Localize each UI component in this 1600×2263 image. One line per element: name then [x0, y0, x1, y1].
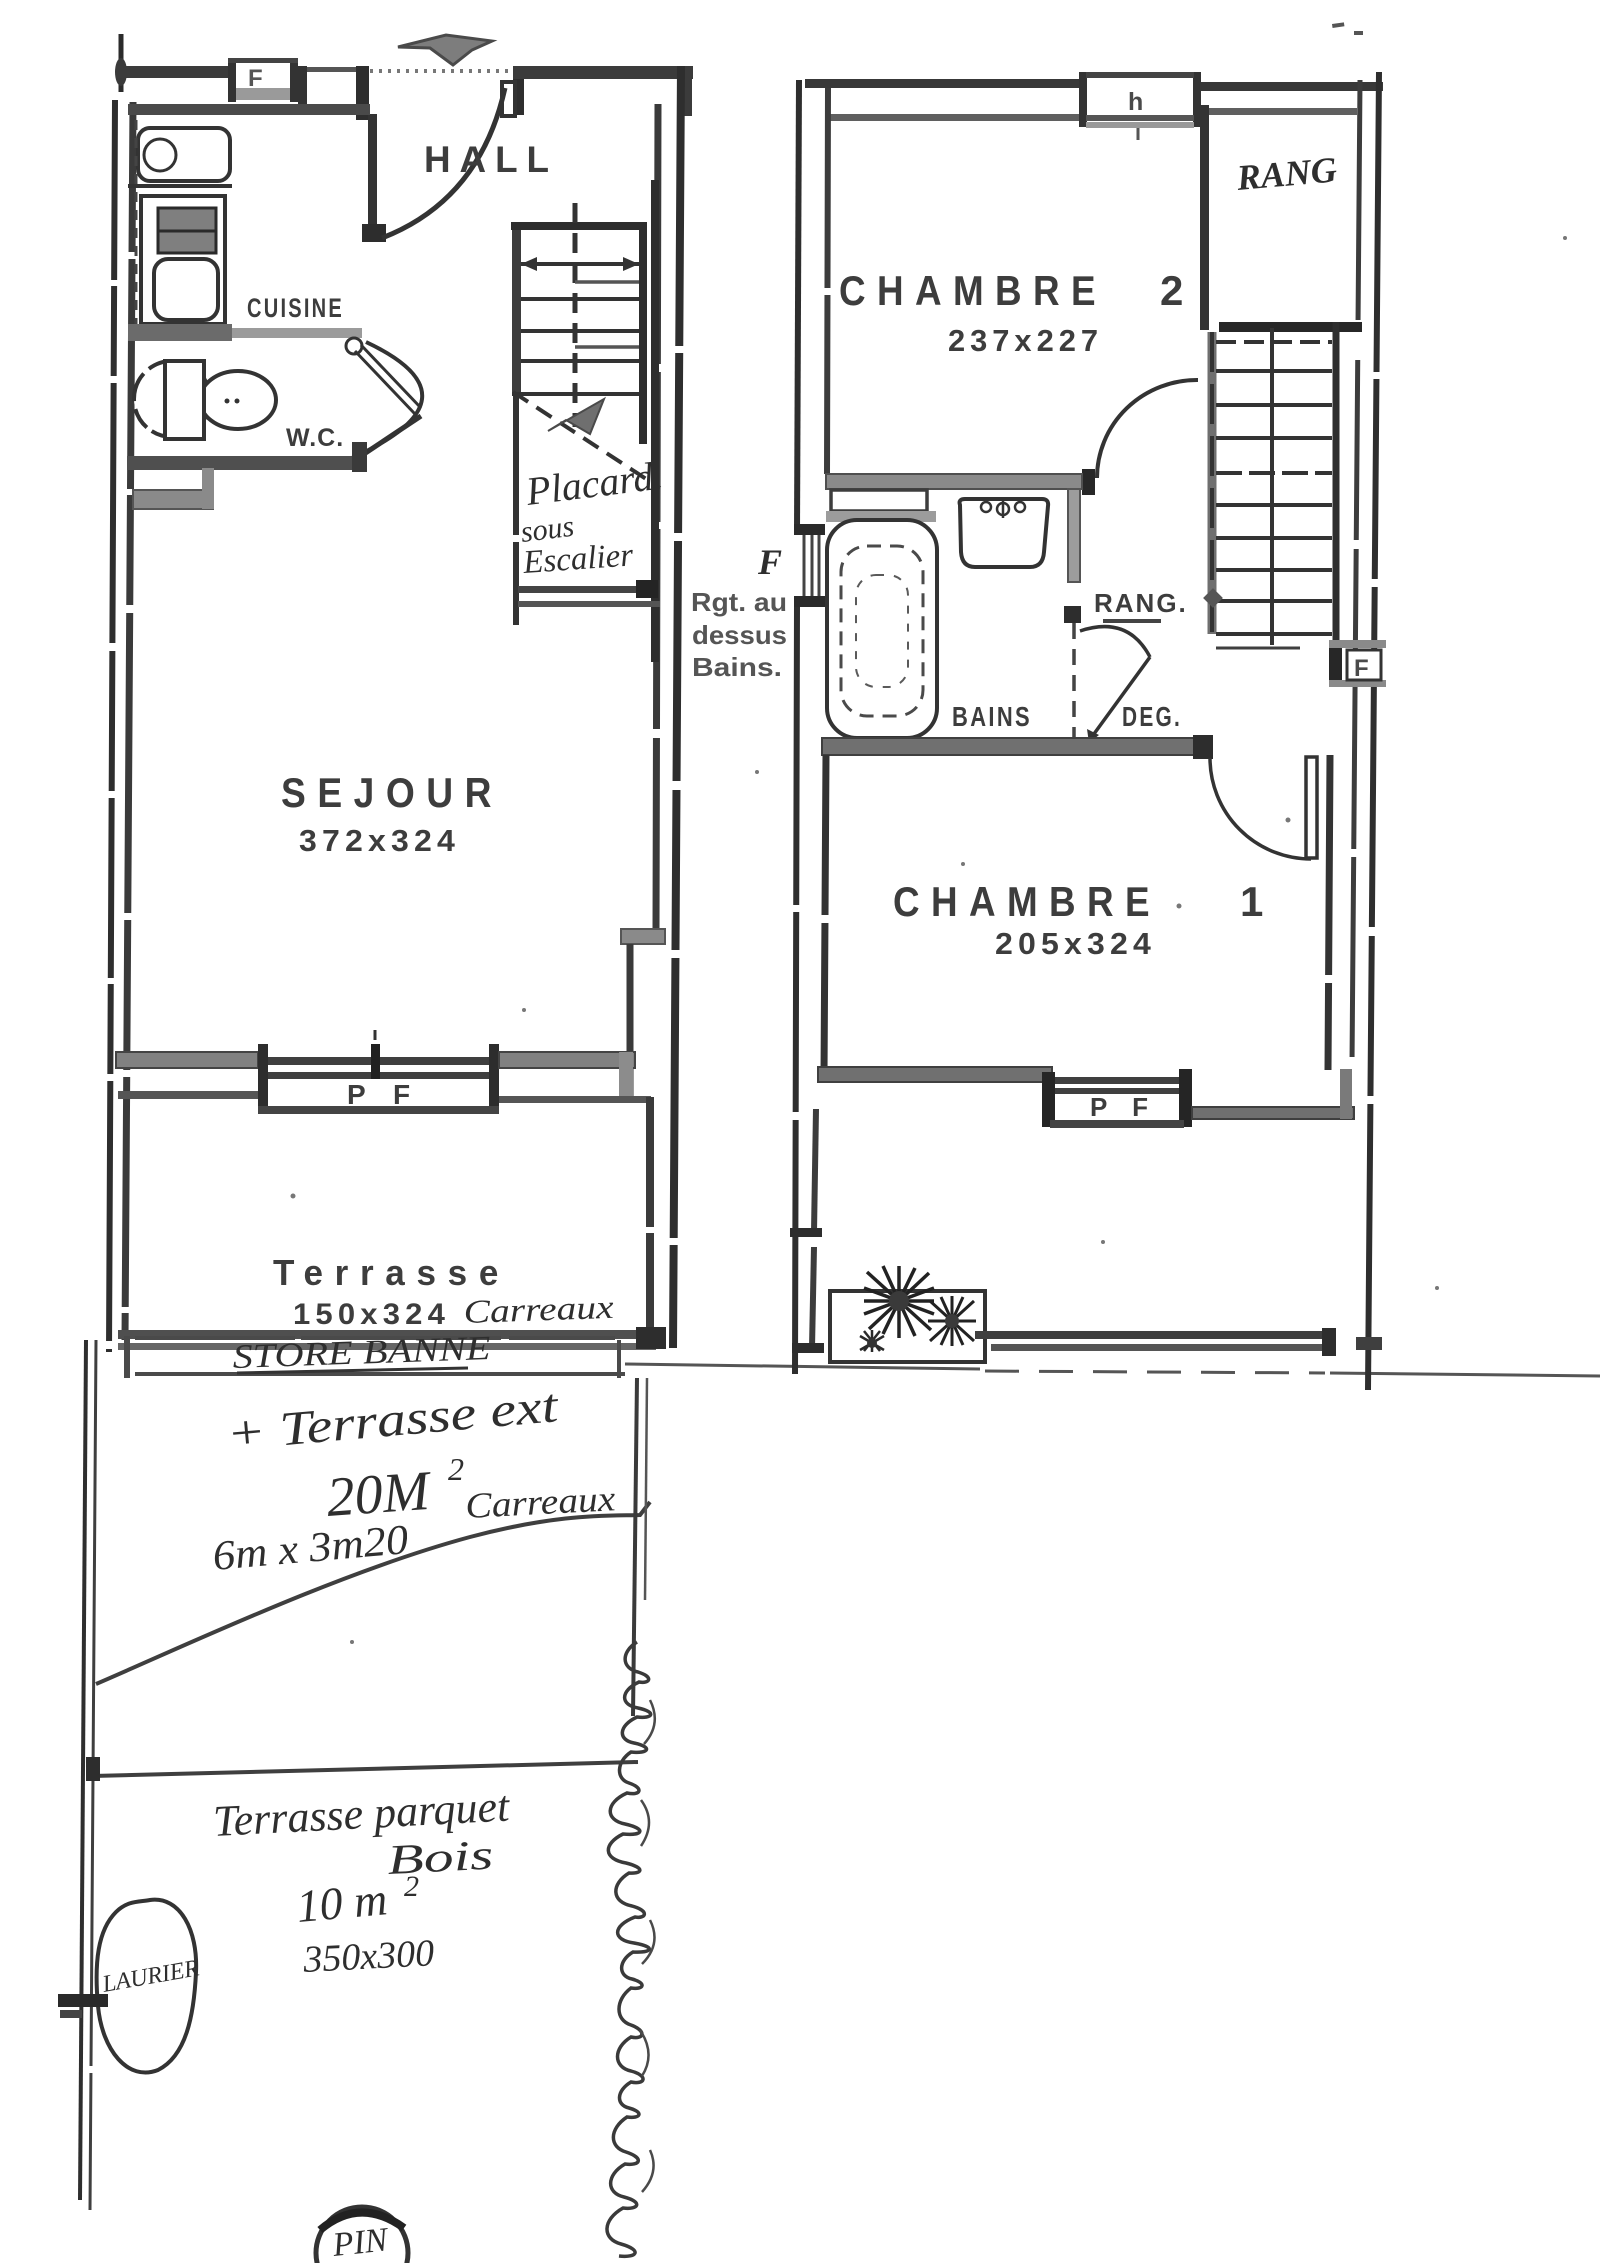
svg-text:Bois: Bois	[386, 1833, 494, 1884]
svg-text:Escalier: Escalier	[521, 537, 634, 581]
svg-text:Placard: Placard	[523, 454, 657, 514]
svg-text:DEG.: DEG.	[1122, 701, 1182, 732]
svg-text:Rgt. au: Rgt. au	[691, 587, 787, 617]
svg-text:6m x 3m20: 6m x 3m20	[211, 1517, 410, 1580]
svg-text:Carreaux: Carreaux	[463, 1290, 615, 1331]
svg-text:W.C.: W.C.	[286, 424, 344, 452]
svg-text:F: F	[757, 542, 782, 582]
svg-text:CUISINE: CUISINE	[247, 293, 344, 323]
svg-text:P F: P F	[347, 1079, 420, 1110]
svg-text:Terrasse: Terrasse	[273, 1252, 510, 1293]
svg-text:2: 2	[404, 1870, 419, 1903]
svg-text:F: F	[1354, 655, 1369, 682]
svg-text:350x300: 350x300	[301, 1932, 435, 1981]
svg-text:1: 1	[1240, 878, 1263, 925]
svg-text:2: 2	[448, 1451, 464, 1487]
svg-text:372x324: 372x324	[299, 823, 460, 858]
svg-text:PIN: PIN	[330, 2221, 392, 2263]
svg-text:10 m: 10 m	[294, 1873, 389, 1932]
svg-text:2: 2	[1160, 267, 1183, 314]
svg-text:HALL: HALL	[424, 139, 558, 180]
svg-text:RANG: RANG	[1234, 149, 1338, 198]
svg-text:RANG.: RANG.	[1094, 588, 1188, 618]
svg-text:CHAMBRE: CHAMBRE	[893, 878, 1161, 925]
svg-text:F: F	[248, 65, 263, 92]
svg-text:SEJOUR: SEJOUR	[281, 769, 503, 816]
svg-text:Bains.: Bains.	[692, 652, 782, 682]
svg-text:205x324: 205x324	[995, 926, 1156, 961]
svg-text:h: h	[1128, 88, 1143, 116]
svg-text:BAINS: BAINS	[952, 701, 1032, 732]
svg-text:Carreaux: Carreaux	[464, 1478, 616, 1526]
svg-text:+ Terrasse ext: + Terrasse ext	[224, 1379, 561, 1461]
svg-text:CHAMBRE: CHAMBRE	[839, 267, 1107, 314]
svg-text:dessus: dessus	[692, 620, 787, 650]
svg-text:150x324: 150x324	[293, 1298, 450, 1331]
svg-text:237x227: 237x227	[948, 323, 1103, 358]
svg-text:P F: P F	[1090, 1092, 1157, 1122]
